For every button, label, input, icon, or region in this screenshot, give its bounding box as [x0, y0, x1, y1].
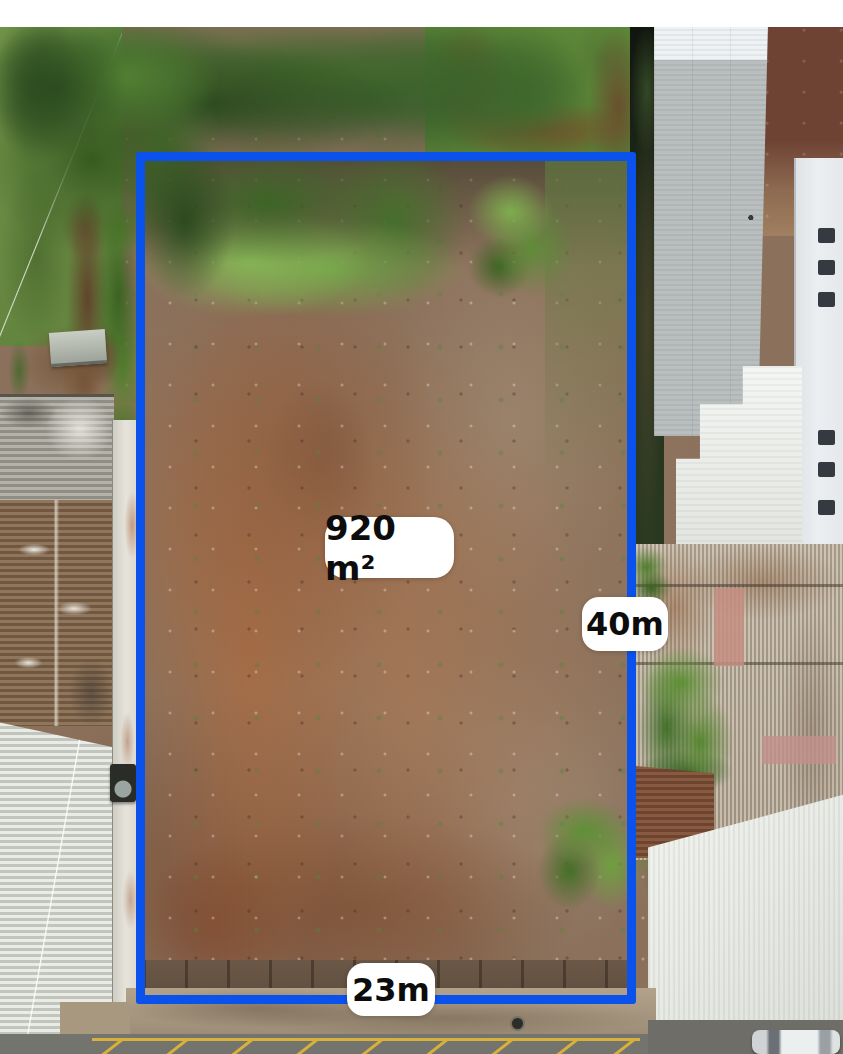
area-label: 920 m² [325, 517, 454, 578]
aerial-photo: 920 m² 40m 23m [0, 0, 843, 1054]
window [818, 228, 835, 243]
corrugated-roof-rust [0, 500, 114, 726]
frontage-length-label: 23m [347, 963, 435, 1016]
ac-unit [110, 764, 136, 802]
side-length-label: 40m [582, 597, 668, 651]
manhole-cover [512, 1018, 523, 1029]
pink-roof-patch [762, 736, 836, 764]
road-marking [92, 1038, 640, 1041]
corrugated-roof-gray [0, 394, 114, 503]
window [818, 462, 835, 477]
window [818, 430, 835, 445]
parked-car [752, 1030, 840, 1054]
small-shed-roof [49, 329, 107, 367]
window [818, 292, 835, 307]
window [818, 500, 835, 515]
letterbox-strip [0, 0, 843, 27]
window [818, 260, 835, 275]
